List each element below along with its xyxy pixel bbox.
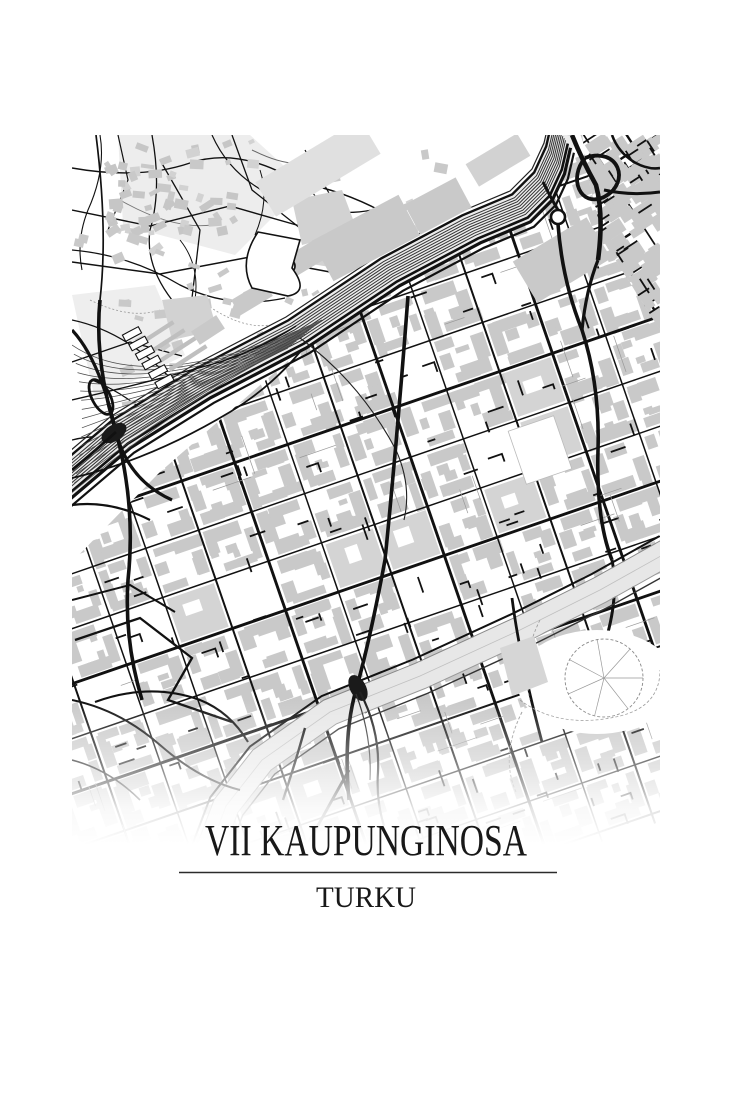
svg-text:VII KAUPUNGINOSA: VII KAUPUNGINOSA bbox=[205, 816, 527, 865]
svg-text:TURKU: TURKU bbox=[316, 882, 416, 914]
